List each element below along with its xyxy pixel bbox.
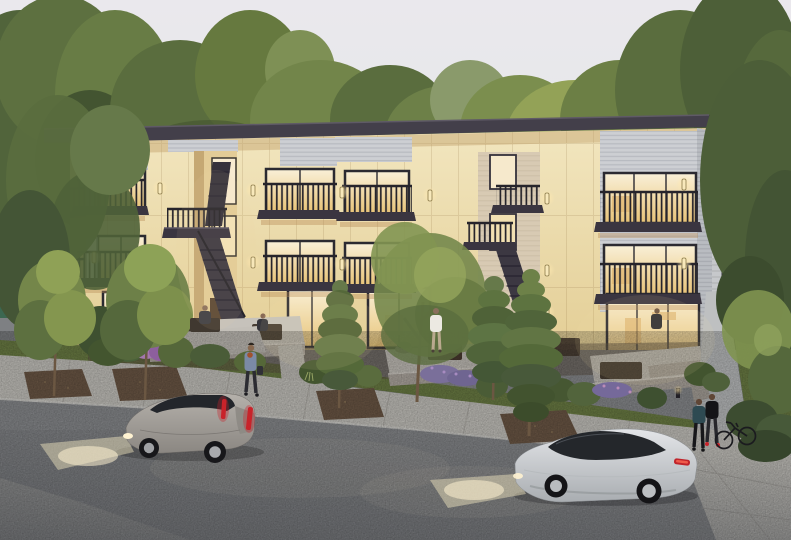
metal-panel — [168, 140, 238, 152]
metal-panel — [335, 137, 412, 162]
metal-panel — [280, 138, 337, 166]
headlight — [513, 473, 523, 479]
apartment-rendering — [0, 0, 791, 540]
rendering-canvas — [0, 0, 791, 540]
headlight — [123, 433, 133, 439]
